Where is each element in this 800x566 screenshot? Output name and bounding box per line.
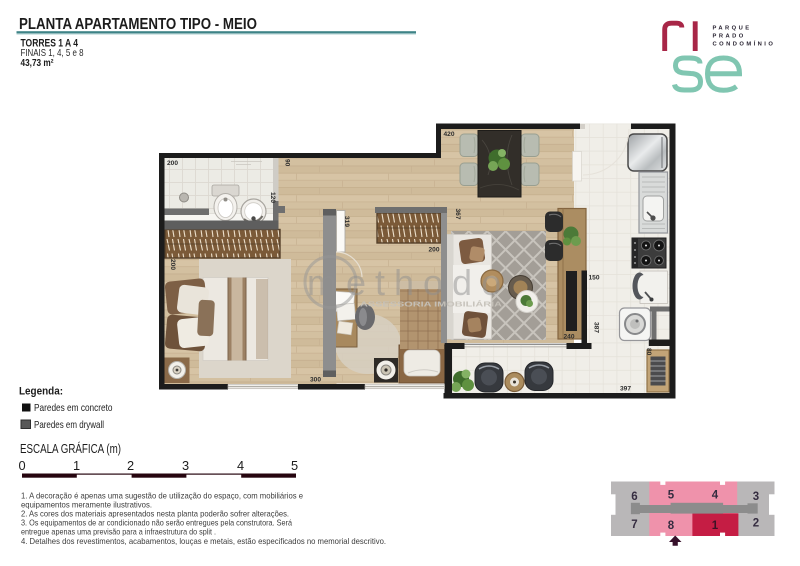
svg-text:43,73 m²: 43,73 m² bbox=[21, 58, 54, 69]
svg-text:8: 8 bbox=[668, 520, 675, 532]
svg-text:3: 3 bbox=[753, 491, 759, 503]
svg-text:387: 387 bbox=[593, 322, 600, 333]
svg-text:2: 2 bbox=[753, 518, 759, 530]
svg-text:ASSESSORIA IMOBILIÁRIA: ASSESSORIA IMOBILIÁRIA bbox=[360, 300, 503, 309]
svg-text:240: 240 bbox=[564, 334, 575, 341]
svg-text:CONDOMÍNIO: CONDOMÍNIO bbox=[713, 39, 776, 47]
svg-text:Legenda:: Legenda: bbox=[19, 386, 63, 398]
svg-text:PRADO: PRADO bbox=[713, 34, 746, 40]
svg-text:5: 5 bbox=[668, 490, 675, 502]
svg-text:6: 6 bbox=[631, 491, 637, 503]
svg-text:0: 0 bbox=[19, 458, 26, 473]
svg-text:entregue apenas uma previsão p: entregue apenas uma previsão para a infr… bbox=[21, 527, 216, 537]
svg-text:5: 5 bbox=[291, 458, 298, 473]
svg-text:397: 397 bbox=[620, 386, 631, 393]
svg-text:4. Detalhes dos revestimentos,: 4. Detalhes dos revestimentos, acabament… bbox=[21, 536, 386, 546]
svg-text:3: 3 bbox=[182, 458, 189, 473]
svg-text:PARQUE: PARQUE bbox=[713, 25, 752, 31]
svg-text:4: 4 bbox=[237, 458, 244, 473]
svg-text:319: 319 bbox=[343, 216, 350, 227]
svg-text:2: 2 bbox=[127, 458, 134, 473]
svg-text:1: 1 bbox=[712, 520, 719, 532]
svg-text:methodo: methodo bbox=[307, 262, 510, 303]
svg-text:300: 300 bbox=[310, 377, 321, 384]
svg-text:90: 90 bbox=[284, 159, 291, 167]
svg-text:200: 200 bbox=[429, 247, 440, 254]
svg-text:200: 200 bbox=[167, 160, 178, 167]
svg-text:ESCALA GRÁFICA (m): ESCALA GRÁFICA (m) bbox=[20, 441, 121, 456]
svg-text:Paredes em drywall: Paredes em drywall bbox=[34, 420, 104, 431]
svg-text:4: 4 bbox=[712, 490, 719, 502]
svg-text:200: 200 bbox=[169, 259, 176, 270]
svg-text:420: 420 bbox=[444, 131, 455, 138]
svg-text:80: 80 bbox=[645, 348, 652, 356]
svg-text:Paredes em concreto: Paredes em concreto bbox=[34, 403, 113, 414]
svg-text:PLANTA APARTAMENTO TIPO - MEIO: PLANTA APARTAMENTO TIPO - MEIO bbox=[19, 16, 257, 33]
svg-text:150: 150 bbox=[589, 275, 600, 282]
svg-text:367: 367 bbox=[454, 209, 461, 220]
svg-text:120: 120 bbox=[269, 192, 276, 203]
svg-text:7: 7 bbox=[631, 519, 637, 531]
svg-text:1: 1 bbox=[73, 458, 80, 473]
